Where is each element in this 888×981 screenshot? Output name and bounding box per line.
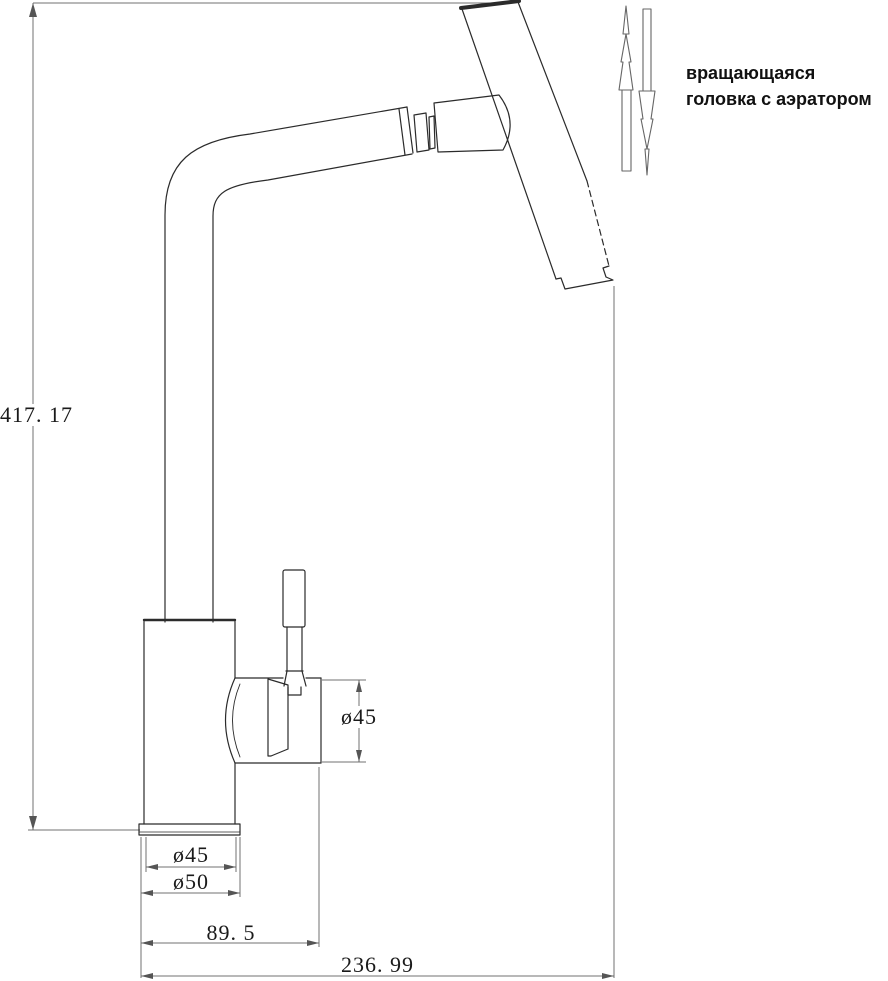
dim-head-spout-diameter-label: ø45	[337, 706, 381, 728]
dim-spout-offset-label: 89. 5	[196, 922, 266, 944]
annotation-line-2: головка с аэратором	[686, 86, 872, 112]
filter-spout-housing	[226, 678, 322, 763]
dimension-arrowheads	[29, 3, 614, 979]
rotation-arrows	[619, 6, 655, 175]
technical-drawing-canvas: 417. 17 ø45 ø45 ø50 89. 5 236. 99 вращаю…	[0, 0, 888, 981]
dim-base-diameter-label: ø50	[155, 871, 227, 893]
rotating-head-annotation: вращающаяся головка с аэратором	[686, 60, 872, 112]
dim-overall-reach-label: 236. 99	[330, 954, 425, 976]
head-connector	[414, 95, 510, 152]
dimension-lines	[28, 3, 614, 978]
base-flange	[139, 824, 240, 835]
rotate-down-arrow-icon	[639, 9, 655, 175]
dim-overall-height-label: 417. 17	[0, 404, 76, 426]
annotation-line-1: вращающаяся	[686, 60, 872, 86]
dim-body-diameter-label: ø45	[155, 844, 227, 866]
body-cylinder	[144, 620, 235, 824]
spray-head-top-band	[461, 1, 519, 8]
faucet-line-drawing	[0, 0, 888, 981]
spray-head	[461, 1, 613, 289]
rotate-up-arrow-icon	[619, 6, 633, 171]
spout-tube	[165, 107, 413, 622]
handle-lever	[283, 570, 306, 695]
